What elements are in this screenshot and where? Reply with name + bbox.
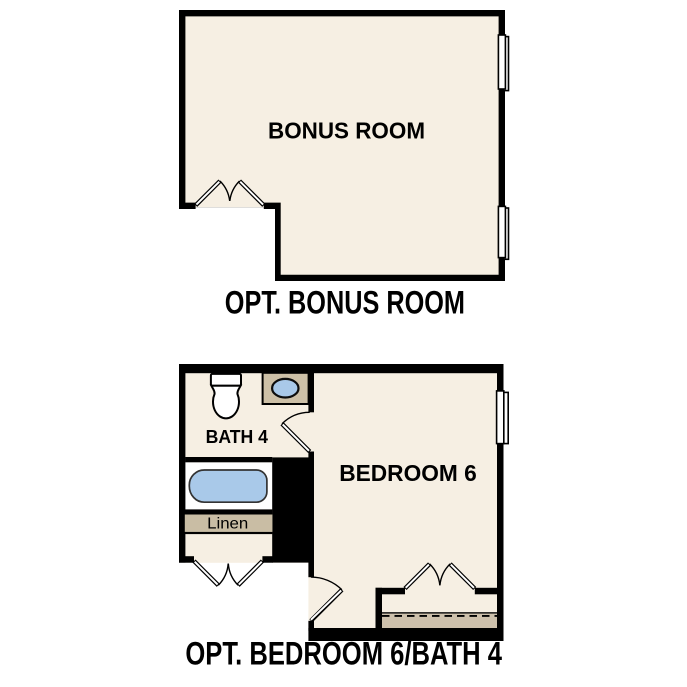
svg-text:BEDROOM 6: BEDROOM 6 bbox=[339, 460, 477, 486]
svg-text:BONUS ROOM: BONUS ROOM bbox=[268, 118, 425, 144]
svg-text:Linen: Linen bbox=[207, 516, 248, 533]
svg-text:BATH 4: BATH 4 bbox=[206, 427, 269, 448]
svg-text:OPT. BONUS ROOM: OPT. BONUS ROOM bbox=[225, 285, 465, 321]
svg-text:OPT. BEDROOM 6/BATH 4: OPT. BEDROOM 6/BATH 4 bbox=[185, 636, 502, 672]
